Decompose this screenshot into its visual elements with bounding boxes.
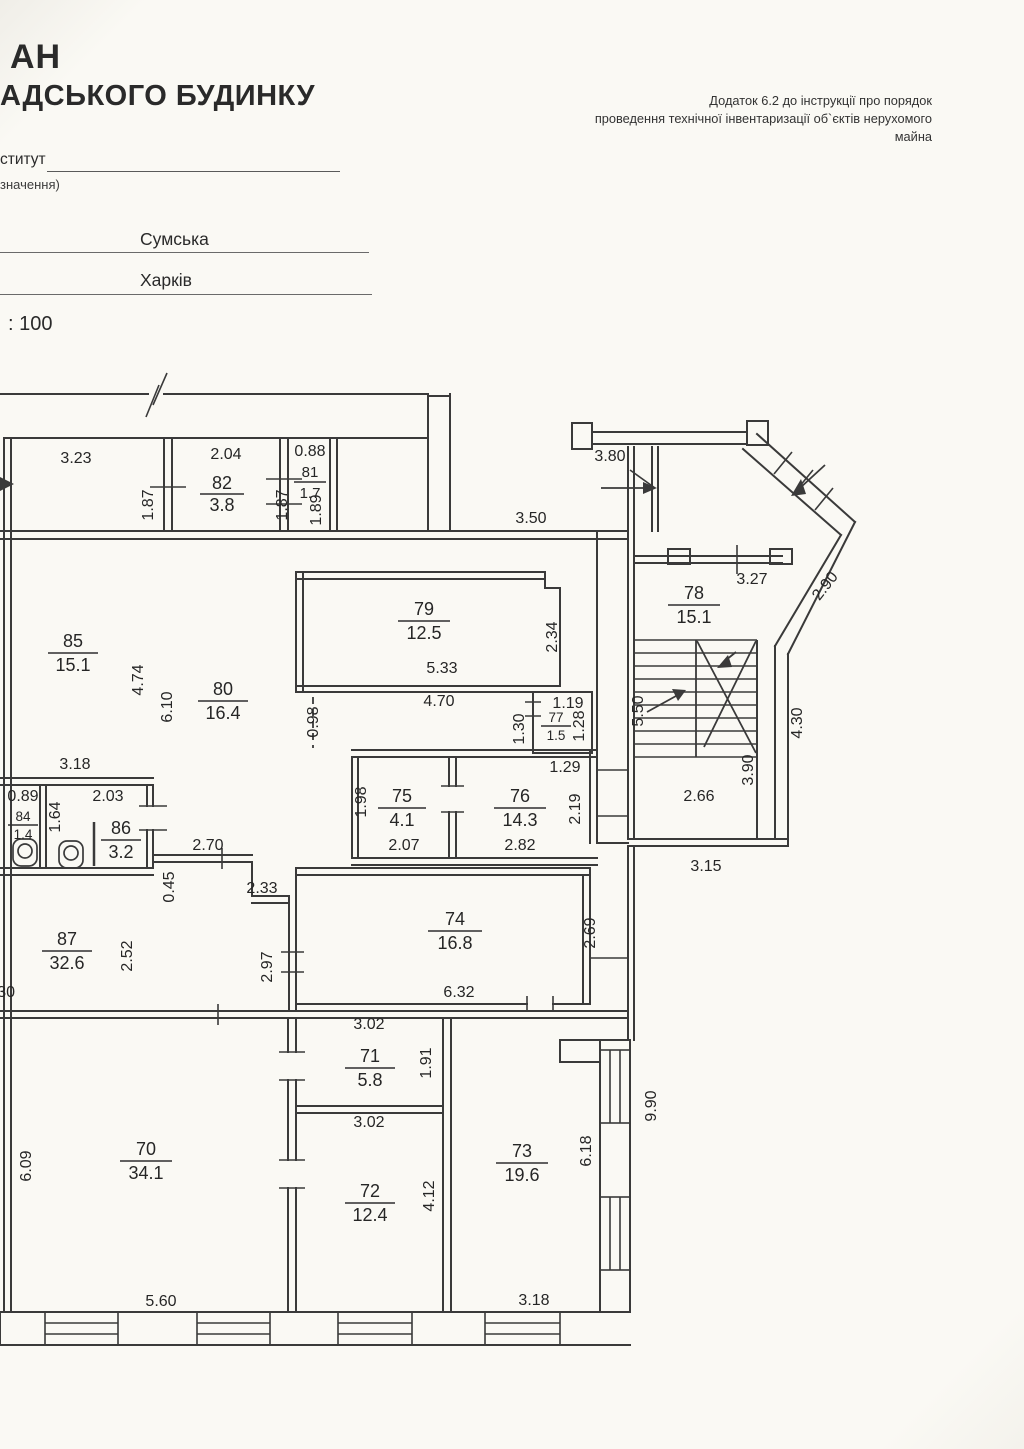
dim-label: 1.28 [571, 710, 588, 741]
room-area: 3.8 [209, 495, 234, 515]
room-number: 74 [445, 909, 465, 929]
room-number: 76 [510, 786, 530, 806]
room-area: 5.8 [357, 1070, 382, 1090]
window-symbol [338, 1312, 412, 1345]
door-ticks [139, 479, 737, 1188]
room70-divider [288, 1018, 296, 1312]
dim-label: 0.89 [7, 788, 38, 805]
dim-label: 2.04 [210, 446, 241, 463]
dim-label: 6.10 [159, 691, 176, 722]
dim-label: 2.82 [504, 837, 535, 854]
room-area: 15.1 [55, 655, 90, 675]
dim-label: 4.74 [130, 664, 147, 695]
dimension-labels: 3.23 1.87 2.04 1.87 0.88 1.89 3.80 3.50 … [0, 443, 842, 1310]
room-area: 12.4 [352, 1205, 387, 1225]
room-number: 84 [15, 809, 31, 824]
window-symbol [45, 1312, 118, 1345]
dim-label: 2.33 [246, 880, 277, 897]
dim-label: 3.02 [353, 1016, 384, 1033]
porch-block-left [572, 423, 592, 449]
room-label-76: 76 14.3 [494, 786, 546, 830]
room-number: 75 [392, 786, 412, 806]
dim-label: 3.27 [736, 571, 767, 588]
dim-label: 3.18 [59, 756, 90, 773]
room-area: 1.5 [547, 728, 566, 743]
dim-label: 5.33 [426, 660, 457, 677]
dim-label: 4.12 [421, 1180, 438, 1211]
dim-label: 3.18 [518, 1292, 549, 1309]
room-number: 79 [414, 599, 434, 619]
room-label-87: 87 32.6 [42, 929, 92, 973]
room-label-86: 86 3.2 [101, 818, 141, 862]
room-label-73: 73 19.6 [496, 1141, 548, 1185]
room-number: 78 [684, 583, 704, 603]
bottom-band-wall [0, 1011, 628, 1018]
dim-label: 3.50 [515, 510, 546, 527]
room-area: 32.6 [49, 953, 84, 973]
room-area: 34.1 [128, 1163, 163, 1183]
room-area: 3.2 [108, 842, 133, 862]
room-number: 71 [360, 1046, 380, 1066]
room-label-74: 74 16.8 [428, 909, 482, 953]
dim-label: 1.98 [353, 786, 370, 817]
room-label-80: 80 16.4 [198, 679, 248, 723]
dim-label: 0.45 [161, 871, 178, 902]
room-area: 4.1 [389, 810, 414, 830]
window-symbol [600, 1050, 630, 1123]
dim-label: 2.07 [388, 837, 419, 854]
dim-label: 2.70 [192, 837, 223, 854]
dim-label: 2.66 [683, 788, 714, 805]
dim-label: 2.03 [92, 788, 123, 805]
dim-label: 1.29 [549, 759, 580, 776]
room-label-79: 79 12.5 [398, 599, 450, 643]
room-label-77: 77 1.5 [541, 710, 571, 743]
dim-label: 5.60 [145, 1293, 176, 1310]
dim-label: 0.88 [294, 443, 325, 460]
room-number: 81 [302, 464, 319, 481]
dim-label: 2.90 [809, 569, 842, 604]
toilet-icon [59, 841, 83, 868]
room-area: 19.6 [504, 1165, 539, 1185]
room-area: 14.3 [502, 810, 537, 830]
dim-label: 3.02 [353, 1114, 384, 1131]
room-area: 15.1 [676, 607, 711, 627]
room-label-75: 75 4.1 [378, 786, 426, 830]
room-number: 70 [136, 1139, 156, 1159]
bottom-outer-wall [0, 1312, 630, 1345]
dim-label: 1.87 [140, 489, 157, 520]
room-number: 82 [212, 473, 232, 493]
dim-label: 4.30 [789, 707, 806, 738]
room-area: 12.5 [406, 623, 441, 643]
dim-label: 5.50 [630, 695, 647, 726]
room87-right-wall [289, 868, 296, 1011]
window-symbol [600, 1197, 630, 1270]
room-number: 87 [57, 929, 77, 949]
main-band-wall [0, 531, 628, 539]
dim-label: 1.87 [274, 489, 291, 520]
window-symbol [197, 1312, 270, 1345]
dim-label: 3.80 [594, 448, 625, 465]
room-label-72: 72 12.4 [345, 1181, 395, 1225]
dim-label: 2.52 [119, 940, 136, 971]
corridor-right-wall [597, 531, 628, 843]
dim-label: 1.30 [511, 713, 528, 744]
room73-divider [443, 1018, 451, 1312]
stair-shaft-left-wall [628, 531, 634, 839]
dim-label: 4.70 [423, 693, 454, 710]
dim-label: 2.69 [582, 917, 599, 948]
dim-label: 9.90 [643, 1090, 660, 1121]
room-area: 16.8 [437, 933, 472, 953]
rooms71-72-divider [296, 1106, 443, 1113]
room-number: 86 [111, 818, 131, 838]
dim-label: 1.91 [418, 1047, 435, 1078]
room-label-84: 84 1.4 [8, 809, 38, 842]
dim-label: 30 [0, 984, 15, 1001]
room-area: 16.4 [205, 703, 240, 723]
floor-plan: 3.23 1.87 2.04 1.87 0.88 1.89 3.80 3.50 … [0, 0, 1024, 1449]
dim-label: 2.19 [567, 793, 584, 824]
room78-top-wall [634, 556, 782, 563]
room-number: 73 [512, 1141, 532, 1161]
room-number: 72 [360, 1181, 380, 1201]
dim-label: 6.09 [18, 1150, 35, 1181]
dim-label: 0.98 [305, 706, 322, 737]
stairs [634, 452, 833, 839]
dim-label: 3.90 [740, 754, 757, 785]
room-label-85: 85 15.1 [48, 631, 98, 675]
room-label-71: 71 5.8 [345, 1046, 395, 1090]
dim-label: 3.23 [60, 450, 91, 467]
room-number: 80 [213, 679, 233, 699]
porch-bar [592, 432, 747, 444]
room-label-82: 82 3.8 [200, 473, 244, 515]
room-number: 85 [63, 631, 83, 651]
dim-label: 2.34 [544, 621, 561, 652]
dim-label: 6.32 [443, 984, 474, 1001]
dim-label: 6.18 [578, 1135, 595, 1166]
room-label-78: 78 15.1 [668, 583, 720, 627]
dim-label: 2.97 [259, 951, 276, 982]
dim-label: 3.15 [690, 858, 721, 875]
toilet-icon [13, 839, 37, 866]
room-label-70: 70 34.1 [120, 1139, 172, 1183]
dim-label: 1.64 [47, 801, 64, 832]
room-area: 1.7 [300, 485, 321, 502]
room-area: 1.4 [14, 827, 33, 842]
window-symbol [485, 1312, 560, 1345]
room-number: 77 [548, 710, 563, 725]
